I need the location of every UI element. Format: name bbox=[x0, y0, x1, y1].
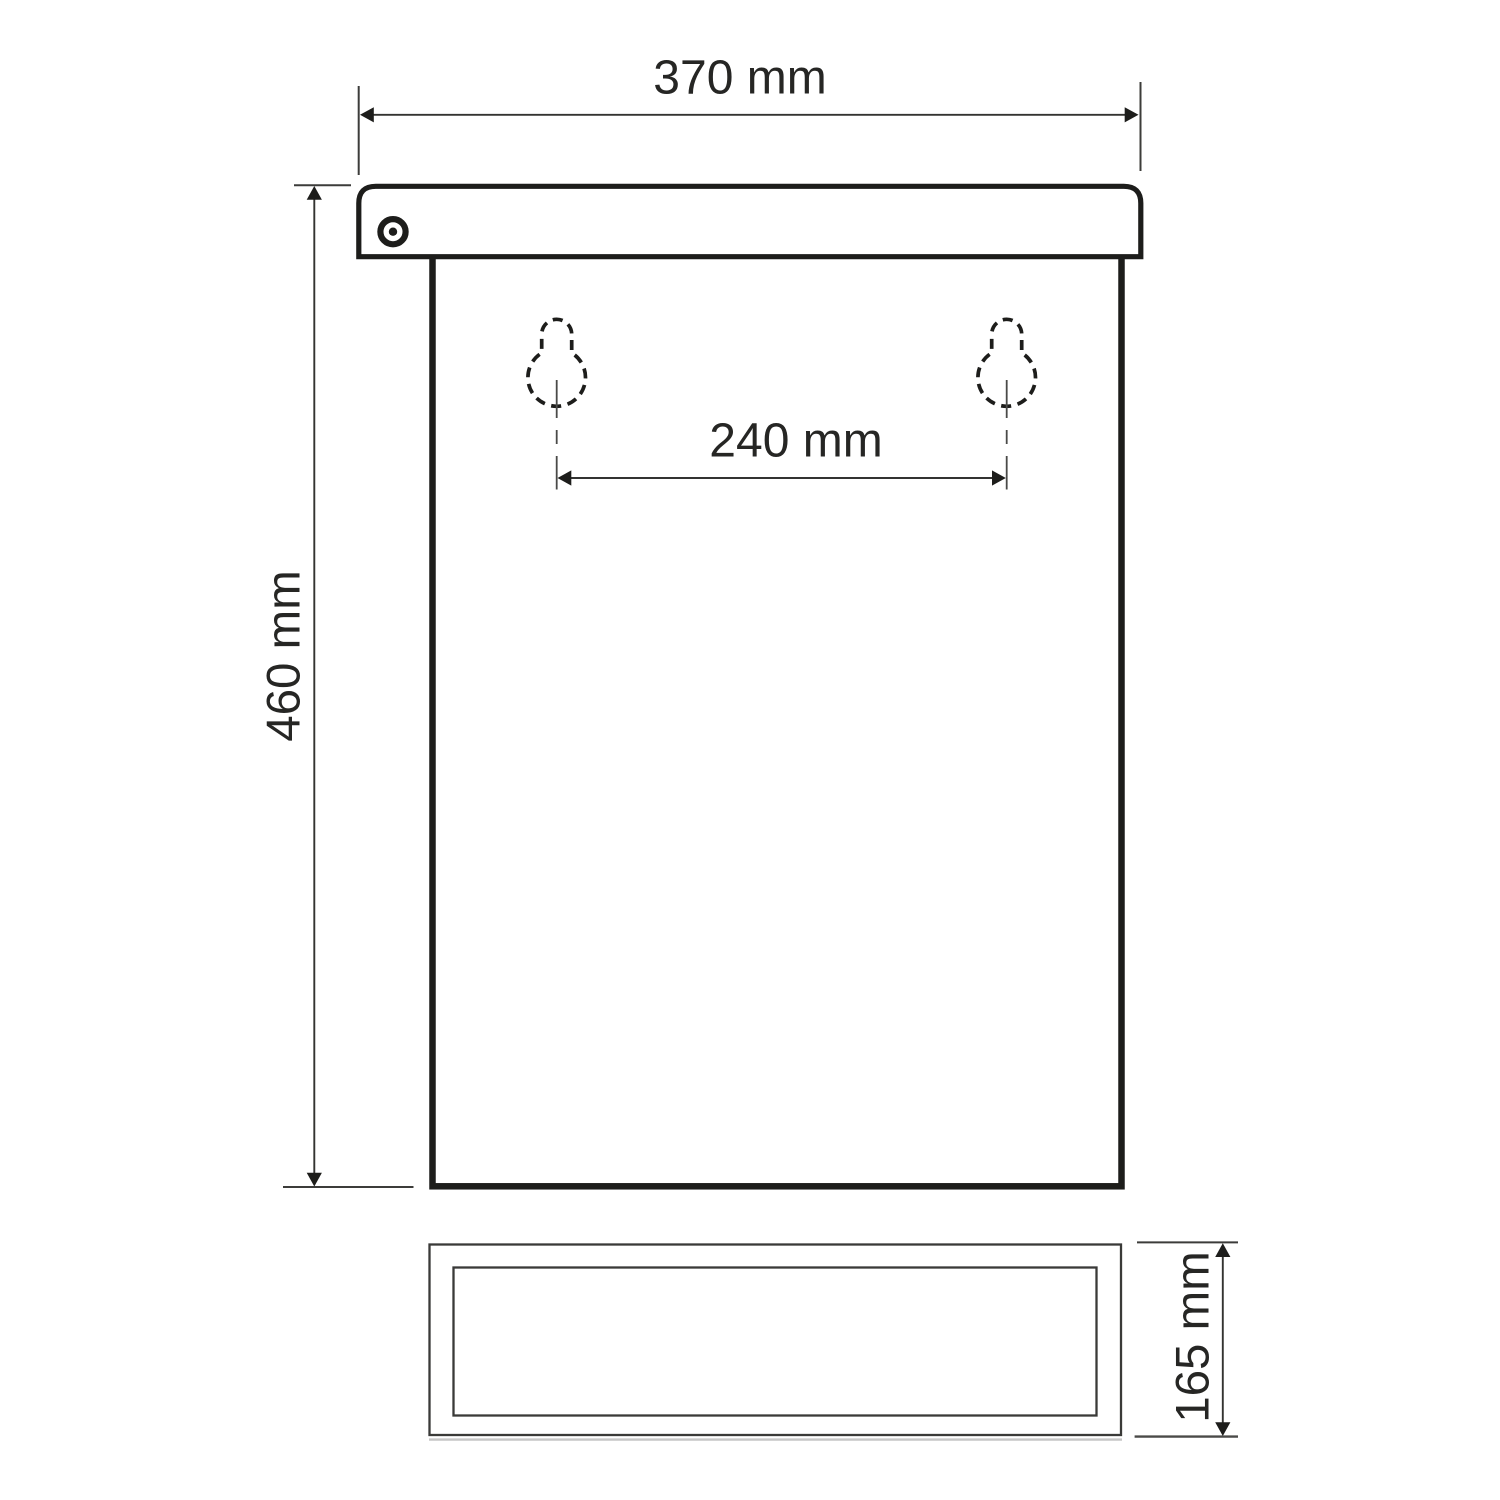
svg-text:165 mm: 165 mm bbox=[1167, 1251, 1220, 1423]
svg-text:370 mm: 370 mm bbox=[653, 52, 826, 105]
svg-text:240 mm: 240 mm bbox=[709, 415, 882, 468]
svg-text:460 mm: 460 mm bbox=[258, 570, 311, 742]
